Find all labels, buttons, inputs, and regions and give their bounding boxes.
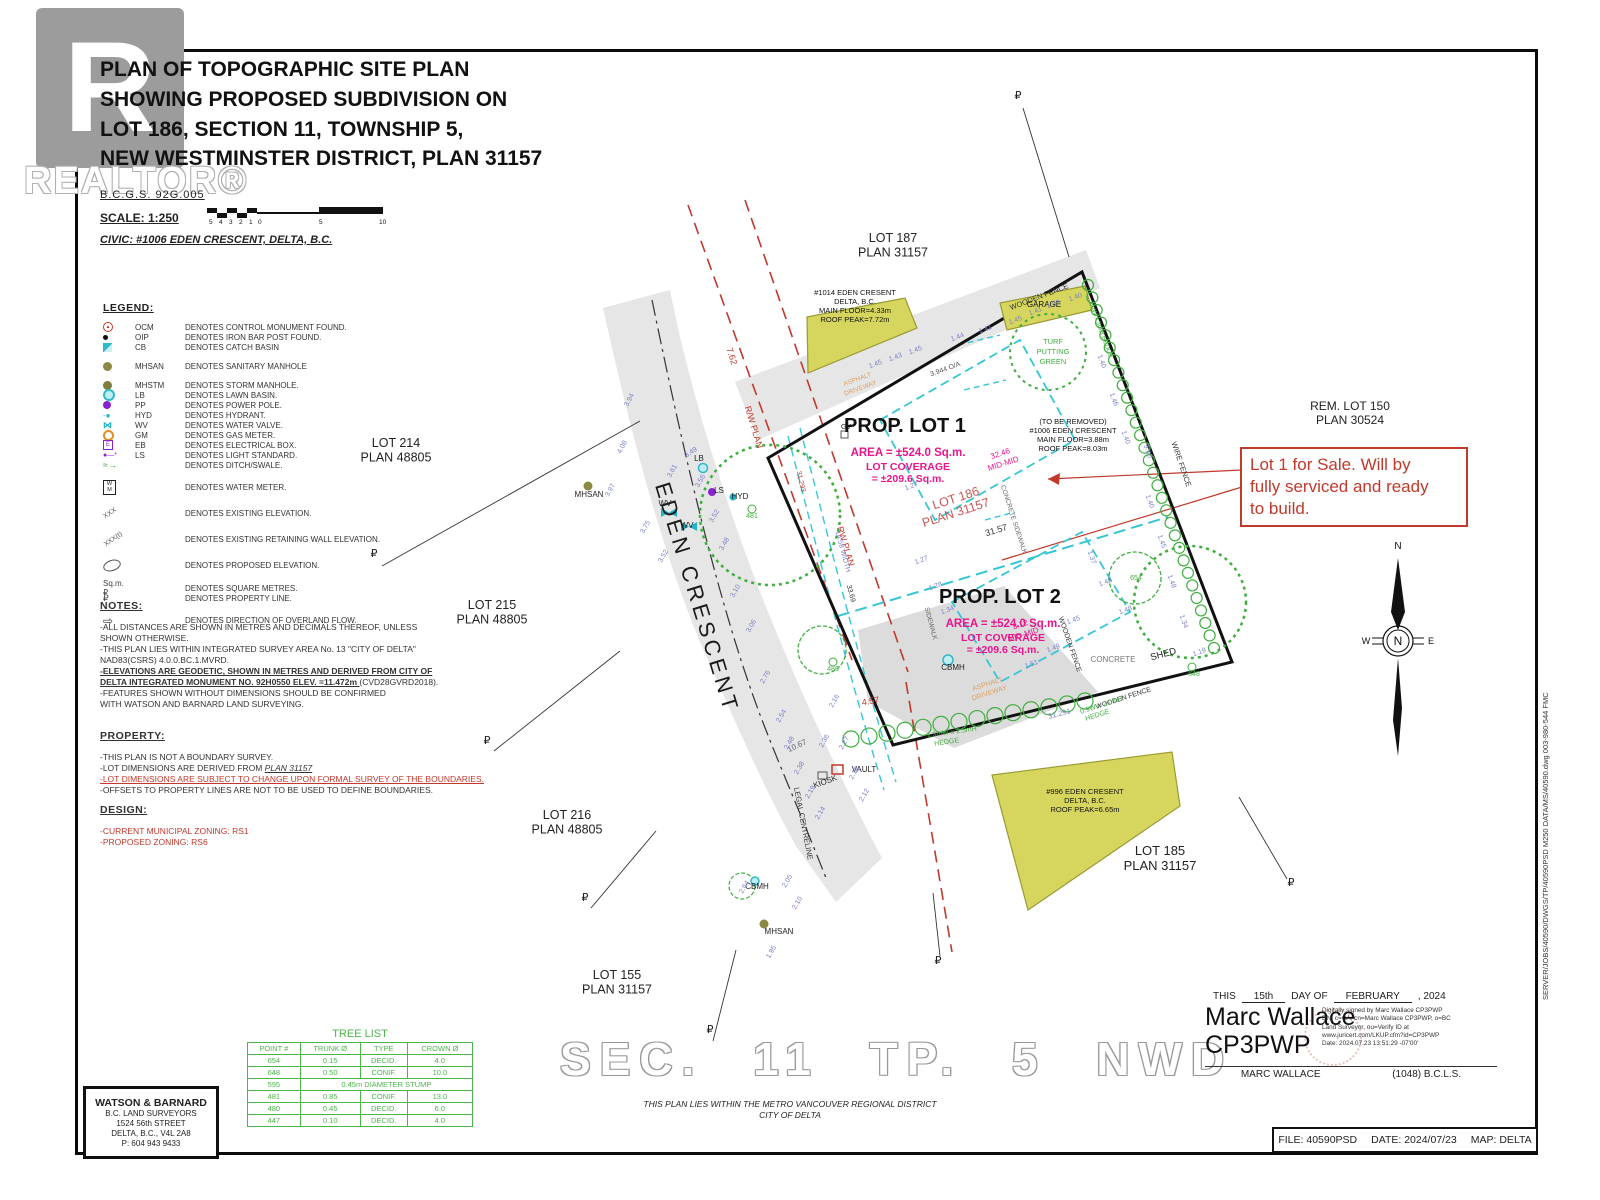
tree-cell: 0.50 — [300, 1067, 360, 1079]
tree-header-cell: TYPE — [360, 1043, 407, 1055]
legend-desc: DENOTES IRON BAR POST FOUND. — [185, 333, 321, 342]
legend-symbol-xxxt: XXX(t) — [103, 536, 135, 543]
plan-title-line: PLAN OF TOPOGRAPHIC SITE PLAN — [100, 55, 660, 85]
legend-desc: DENOTES DITCH/SWALE. — [185, 461, 283, 470]
legend-desc: DENOTES STORM MANHOLE. — [185, 381, 299, 390]
plan-title-line: SHOWING PROPOSED SUBDIVISION ON — [100, 85, 660, 115]
tree-cell: 0.85 — [300, 1091, 360, 1103]
digital-detail-line: Digitally signed by Marc Wallace CP3PWP — [1322, 1007, 1498, 1015]
legend-desc: DENOTES GAS METER. — [185, 431, 275, 440]
note-line-text: SHOWN OTHERWISE. — [100, 633, 189, 643]
tree-cell: 481 — [248, 1091, 301, 1103]
scale-number: 3 — [229, 219, 233, 226]
tree-row: 4810.85CONIF.13.0 — [248, 1091, 473, 1103]
region-note-line: THIS PLAN LIES WITHIN THE METRO VANCOUVE… — [600, 1099, 980, 1110]
tree-header-cell: CROWN Ø — [407, 1043, 472, 1055]
tree-cell: 4.0 — [407, 1055, 472, 1067]
legend-desc: DENOTES CONTROL MONUMENT FOUND. — [185, 323, 347, 332]
tree-cell: 0.45m DIAMETER STUMP — [300, 1079, 472, 1091]
note-line-text: NAD83(CSRS) 4.0.0.BC.1.MVRD. — [100, 655, 229, 665]
tree-cell: 0.45 — [300, 1103, 360, 1115]
legend-item: OIPDENOTES IRON BAR POST FOUND. — [103, 332, 463, 342]
note-line-text: -FEATURES SHOWN WITHOUT DIMENSIONS SHOUL… — [100, 688, 386, 698]
legend-item: MHSANDENOTES SANITARY MANHOLE — [103, 361, 463, 371]
surveyor-line: P: 604 943 9433 — [105, 1139, 196, 1149]
bcgs-reference: B.C.G.S. 92G.005 — [100, 189, 205, 201]
legend-desc: DENOTES LIGHT STANDARD. — [185, 451, 297, 460]
property-line-text: -LOT DIMENSIONS ARE DERIVED FROM — [100, 763, 265, 773]
plan-title-line: NEW WESTMINSTER DISTRICT, PLAN 31157 — [100, 144, 660, 174]
scale-bar: 543210510 — [205, 202, 390, 228]
sig-year: , 2024 — [1418, 991, 1446, 1002]
legend-item: XXXDENOTES EXISTING ELEVATION. — [103, 505, 463, 522]
signature-date-line: THIS15thDAY OFFEBRUARY, 2024 — [1213, 991, 1446, 1002]
tree-cell: CONIF. — [360, 1091, 407, 1103]
legend-code: HYD — [135, 411, 185, 420]
scale-number: 5 — [209, 219, 213, 226]
legend-desc: DENOTES SQUARE METRES. — [185, 584, 297, 593]
legend-desc: DENOTES LAWN BASIN. — [185, 391, 277, 400]
digital-detail-line: Date: 2024.07.23 13:51:29 -07'00' — [1322, 1040, 1498, 1048]
note-line: -ELEVATIONS ARE GEODETIC, SHOWN IN METRE… — [100, 666, 438, 677]
sig-pre: THIS — [1213, 991, 1236, 1002]
legend-heading: LEGEND: — [103, 302, 463, 314]
legend-symbol-eb: E — [103, 440, 135, 450]
digital-detail-line: DN: c=CA, cn=Marc Wallace CP3PWP, o=BC — [1322, 1015, 1498, 1023]
tree-cell: 13.0 — [407, 1091, 472, 1103]
scale-number: 10 — [379, 219, 387, 226]
legend-code: PP — [135, 401, 185, 410]
note-line: -THIS PLAN LIES WITHIN INTEGRATED SURVEY… — [100, 644, 438, 655]
tree-cell: 654 — [248, 1055, 301, 1067]
design-heading: DESIGN: — [100, 804, 249, 818]
legend-code: LB — [135, 391, 185, 400]
surveyor-box: WATSON & BARNARD B.C. LAND SURVEYORS1524… — [83, 1086, 219, 1159]
legend-symbol-mhsan — [103, 362, 135, 371]
legend-item: ●—*LSDENOTES LIGHT STANDARD. — [103, 450, 463, 460]
legend-item: ▲OCMDENOTES CONTROL MONUMENT FOUND. — [103, 322, 463, 332]
file-number: FILE: 40590PSD — [1278, 1134, 1357, 1146]
property-line-text: PLAN 31157 — [265, 763, 313, 773]
scale-label: SCALE: 1:250 — [100, 211, 179, 225]
tree-cell: 480 — [248, 1103, 301, 1115]
tree-cell: CONIF. — [360, 1067, 407, 1079]
tree-list-title: TREE LIST — [247, 1028, 473, 1040]
legend-symbol-ocm: ▲ — [103, 322, 135, 332]
file-date: DATE: 2024/07/23 — [1371, 1134, 1457, 1146]
surveyor-printed-name: MARC WALLACE — [1241, 1069, 1321, 1080]
legend-item: XXX(t)DENOTES EXISTING RETAINING WALL EL… — [103, 531, 463, 548]
digital-detail-line: Land Surveyor, ou=Verify ID at — [1322, 1024, 1498, 1032]
legend-code: OCM — [135, 323, 185, 332]
tree-cell: 6.0 — [407, 1103, 472, 1115]
note-line: NAD83(CSRS) 4.0.0.BC.1.MVRD. — [100, 655, 438, 666]
legend-item: GMDENOTES GAS METER. — [103, 430, 463, 440]
legend-desc: DENOTES EXISTING ELEVATION. — [185, 509, 311, 518]
design-line-text: -CURRENT MUNICIPAL ZONING: RS1 — [100, 826, 249, 836]
surveyor-name: WATSON & BARNARD — [95, 1097, 207, 1109]
design-line: -CURRENT MUNICIPAL ZONING: RS1 — [100, 826, 249, 837]
notes-heading: NOTES: — [100, 600, 438, 614]
legend-symbol-ditch: ≈→ — [103, 460, 135, 470]
tree-cell: 447 — [248, 1115, 301, 1127]
design-section: DESIGN: -CURRENT MUNICIPAL ZONING: RS1-P… — [100, 804, 249, 848]
legend-code: WV — [135, 421, 185, 430]
legend-symbol-oval — [103, 560, 135, 571]
note-line: DELTA INTEGRATED MONUMENT NO. 92H0550 EL… — [100, 677, 438, 688]
legend-desc: DENOTES WATER VALVE. — [185, 421, 283, 430]
legend-symbol-cb — [103, 343, 135, 352]
legend-code: GM — [135, 431, 185, 440]
legend-symbol-pp — [103, 401, 135, 409]
legend-desc: DENOTES EXISTING RETAINING WALL ELEVATIO… — [185, 535, 380, 544]
surveyor-credentials: (1048) B.C.L.S. — [1392, 1069, 1461, 1080]
region-note: THIS PLAN LIES WITHIN THE METRO VANCOUVE… — [600, 1099, 980, 1121]
surveyor-line: B.C. LAND SURVEYORS — [105, 1109, 196, 1119]
legend-desc: DENOTES CATCH BASIN — [185, 343, 279, 352]
surveyor-line: DELTA, B.C., V4L 2A8 — [105, 1129, 196, 1139]
legend-desc: DENOTES WATER METER. — [185, 483, 286, 492]
legend-desc: DENOTES HYDRANT. — [185, 411, 266, 420]
note-line-text: -ALL DISTANCES ARE SHOWN IN METRES AND D… — [100, 622, 417, 632]
legend-desc: DENOTES ELECTRICAL BOX. — [185, 441, 296, 450]
tree-row: 5950.45m DIAMETER STUMP — [248, 1079, 473, 1091]
tree-cell: DECID. — [360, 1115, 407, 1127]
legend-item: ⋈WVDENOTES WATER VALVE. — [103, 420, 463, 430]
note-line: WITH WATSON AND BARNARD LAND SURVEYING. — [100, 699, 438, 710]
note-line-text: -ELEVATIONS ARE GEODETIC, SHOWN IN METRE… — [100, 666, 432, 676]
property-line-text: -THIS PLAN IS NOT A BOUNDARY SURVEY. — [100, 752, 273, 762]
legend-symbol-hyd: -● — [103, 411, 135, 420]
note-line-text: WITH WATSON AND BARNARD LAND SURVEYING. — [100, 699, 304, 709]
legend-item: -●HYDDENOTES HYDRANT. — [103, 410, 463, 420]
legend-item: EEBDENOTES ELECTRICAL BOX. — [103, 440, 463, 450]
tree-row: 6480.50CONIF.10.0 — [248, 1067, 473, 1079]
design-line: -PROPOSED ZONING: RS6 — [100, 837, 249, 848]
property-line-text: -LOT DIMENSIONS ARE SUBJECT TO CHANGE UP… — [100, 774, 484, 784]
sig-day: 15th — [1242, 991, 1285, 1003]
note-line: SHOWN OTHERWISE. — [100, 633, 438, 644]
legend: LEGEND: ▲OCMDENOTES CONTROL MONUMENT FOU… — [103, 302, 463, 629]
legend-symbol-xxx: XXX — [103, 510, 135, 517]
design-line-text: -PROPOSED ZONING: RS6 — [100, 837, 208, 847]
scale-number: 4 — [219, 219, 223, 226]
property-line: -THIS PLAN IS NOT A BOUNDARY SURVEY. — [100, 752, 484, 763]
plan-title: PLAN OF TOPOGRAPHIC SITE PLANSHOWING PRO… — [100, 55, 660, 174]
file-map: MAP: DELTA — [1471, 1134, 1532, 1146]
legend-symbol-wm: WM — [103, 480, 135, 495]
tree-cell: 595 — [248, 1079, 301, 1091]
signature-names: MARC WALLACE (1048) B.C.L.S. — [1205, 1069, 1497, 1080]
legend-code: MHSTM — [135, 381, 185, 390]
scale-number: 1 — [249, 219, 253, 226]
tree-cell: 0.15 — [300, 1055, 360, 1067]
sale-note-line: to build. — [1250, 498, 1458, 520]
surveyor-line: 1524 56th STREET — [105, 1119, 196, 1129]
property-heading: PROPERTY: — [100, 730, 484, 744]
legend-desc: DENOTES PROPOSED ELEVATION. — [185, 561, 319, 570]
note-line: -FEATURES SHOWN WITHOUT DIMENSIONS SHOUL… — [100, 688, 438, 699]
legend-desc: DENOTES SANITARY MANHOLE — [185, 362, 307, 371]
tree-cell: 10.0 — [407, 1067, 472, 1079]
tree-cell: 648 — [248, 1067, 301, 1079]
region-note-line: CITY OF DELTA — [600, 1110, 980, 1121]
file-info-box: FILE: 40590PSD DATE: 2024/07/23 MAP: DEL… — [1272, 1127, 1538, 1153]
legend-item: ≈→DENOTES DITCH/SWALE. — [103, 460, 463, 470]
note-line-text: DELTA INTEGRATED MONUMENT NO. 92H0550 EL… — [100, 677, 359, 687]
legend-code: OIP — [135, 333, 185, 342]
notes-section: NOTES: -ALL DISTANCES ARE SHOWN IN METRE… — [100, 600, 438, 710]
legend-item: LBDENOTES LAWN BASIN. — [103, 390, 463, 400]
legend-item: MHSTMDENOTES STORM MANHOLE. — [103, 380, 463, 390]
tree-header-cell: POINT # — [248, 1043, 301, 1055]
tree-row: 4470.10DECID.4.0 — [248, 1115, 473, 1127]
legend-item: WMDENOTES WATER METER. — [103, 479, 463, 496]
property-line: -OFFSETS TO PROPERTY LINES ARE NOT TO BE… — [100, 785, 484, 796]
lot1-sale-annotation: Lot 1 for Sale. Will byfully serviced an… — [1240, 447, 1468, 527]
tree-cell: 0.10 — [300, 1115, 360, 1127]
legend-symbol-lb — [103, 389, 135, 401]
sale-note-line: Lot 1 for Sale. Will by — [1250, 454, 1458, 476]
legend-symbol-ls: ●—* — [103, 452, 135, 459]
legend-desc: DENOTES POWER POLE. — [185, 401, 282, 410]
signature-rule — [1205, 1066, 1497, 1067]
legend-code: CB — [135, 343, 185, 352]
sig-month: FEBRUARY — [1334, 991, 1412, 1003]
legend-symbol-gm — [103, 430, 135, 441]
scale-number: 0 — [258, 219, 262, 226]
property-line: -LOT DIMENSIONS ARE DERIVED FROM PLAN 31… — [100, 763, 484, 774]
legend-item: CBDENOTES CATCH BASIN — [103, 342, 463, 352]
tree-list-table: POINT #TRUNK ØTYPECROWN Ø6540.15DECID.4.… — [247, 1042, 473, 1127]
property-line: -LOT DIMENSIONS ARE SUBJECT TO CHANGE UP… — [100, 774, 484, 785]
note-line-text: (CVD28GVRD2018). — [359, 677, 438, 687]
legend-code: MHSAN — [135, 362, 185, 371]
site-plan-page: EDEN CRESCENTR/W PLANRW PLAN7.624.5731.2… — [0, 0, 1600, 1200]
tree-cell: 4.0 — [407, 1115, 472, 1127]
section-banner: SEC. 11 TP. 5 NWD — [560, 1032, 1233, 1086]
digital-detail-line: www.juricert.com/LKUP.cfm?id=CP3PWP — [1322, 1032, 1498, 1040]
sig-mid: DAY OF — [1291, 991, 1327, 1002]
property-section: PROPERTY: -THIS PLAN IS NOT A BOUNDARY S… — [100, 730, 484, 796]
legend-code: LS — [135, 451, 185, 460]
note-line-text: -THIS PLAN LIES WITHIN INTEGRATED SURVEY… — [100, 644, 416, 654]
legend-item: Sq.m.₽DENOTES SQUARE METRES. — [103, 583, 463, 593]
tree-cell: DECID. — [360, 1055, 407, 1067]
scale-number: 2 — [239, 219, 243, 226]
tree-cell: DECID. — [360, 1103, 407, 1115]
sale-note-line: fully serviced and ready — [1250, 476, 1458, 498]
legend-code: EB — [135, 441, 185, 450]
tree-row: 4800.45DECID.6.0 — [248, 1103, 473, 1115]
tree-header-cell: TRUNK Ø — [300, 1043, 360, 1055]
drawing-path-sidenote: SERVER/JOBS/40590/DWGS/TP/40590PSD M250 … — [1541, 388, 1550, 1000]
note-line: -ALL DISTANCES ARE SHOWN IN METRES AND D… — [100, 622, 438, 633]
legend-symbol-oip — [103, 335, 135, 340]
digital-signature-details: Digitally signed by Marc Wallace CP3PWPD… — [1322, 1007, 1498, 1049]
legend-item: DENOTES PROPOSED ELEVATION. — [103, 557, 463, 574]
plan-title-line: LOT 186, SECTION 11, TOWNSHIP 5, — [100, 115, 660, 145]
civic-address: CIVIC: #1006 EDEN CRESCENT, DELTA, B.C. — [100, 234, 332, 246]
tree-header-row: POINT #TRUNK ØTYPECROWN Ø — [248, 1043, 473, 1055]
property-line-text: -OFFSETS TO PROPERTY LINES ARE NOT TO BE… — [100, 785, 433, 795]
tree-row: 6540.15DECID.4.0 — [248, 1055, 473, 1067]
tree-list: TREE LIST POINT #TRUNK ØTYPECROWN Ø6540.… — [247, 1028, 473, 1127]
legend-item: PPDENOTES POWER POLE. — [103, 400, 463, 410]
scale-number: 5 — [319, 219, 323, 226]
